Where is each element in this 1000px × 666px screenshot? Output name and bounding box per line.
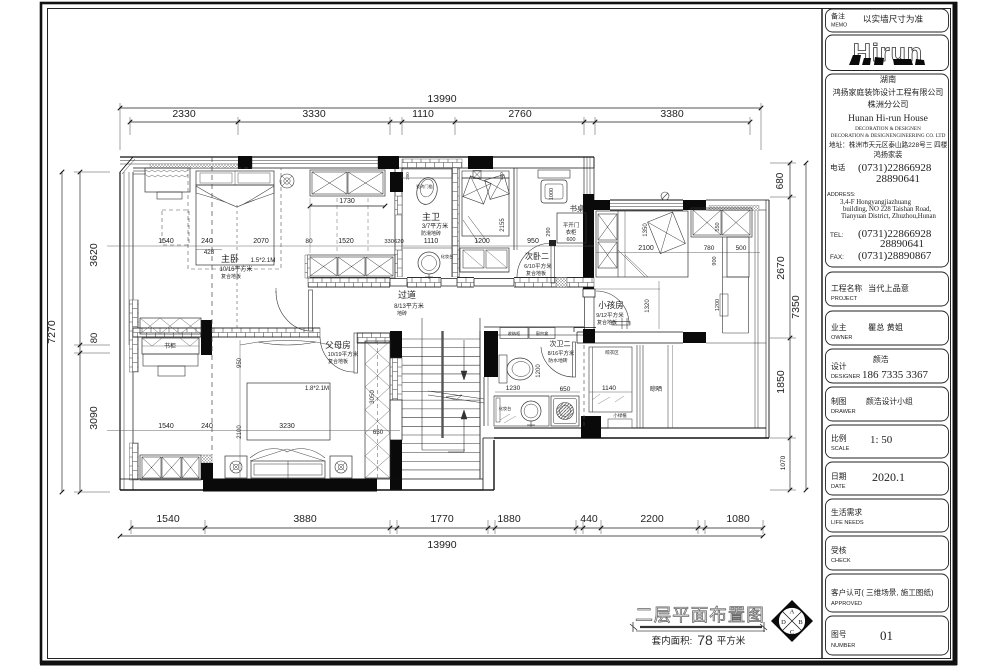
svg-text:7350: 7350	[790, 295, 802, 319]
svg-text:1540: 1540	[156, 513, 180, 525]
svg-text:主卫: 主卫	[422, 211, 440, 222]
svg-text:DESIGNER: DESIGNER	[831, 374, 860, 380]
svg-text:受核: 受核	[831, 545, 847, 555]
svg-text:10/19平方米: 10/19平方米	[328, 350, 359, 358]
svg-text:186 7335 3367: 186 7335 3367	[862, 369, 929, 381]
svg-text:比例: 比例	[831, 433, 847, 443]
svg-text:550: 550	[715, 222, 721, 231]
svg-text:1730: 1730	[339, 198, 355, 205]
svg-text:LIFE NEEDS: LIFE NEEDS	[831, 520, 864, 526]
svg-text:330620: 330620	[384, 239, 403, 245]
svg-text:900: 900	[712, 256, 718, 265]
svg-text:二层平面布置图: 二层平面布置图	[635, 605, 765, 625]
svg-text:化妆台: 化妆台	[499, 405, 512, 412]
svg-text:Tianyuan District, Zhuzhou,Hun: Tianyuan District, Zhuzhou,Hunan	[841, 213, 936, 220]
svg-text:3330: 3330	[302, 108, 326, 120]
svg-text:28890641: 28890641	[876, 173, 920, 185]
svg-text:1770: 1770	[430, 513, 454, 525]
svg-text:1540: 1540	[158, 423, 174, 430]
svg-text:颜浩: 颜浩	[873, 354, 889, 364]
svg-text:晾晒: 晾晒	[650, 385, 662, 393]
svg-text:书桌: 书桌	[570, 203, 585, 213]
svg-text:小绿植: 小绿植	[613, 412, 627, 419]
svg-text:日期: 日期	[831, 472, 847, 481]
svg-text:DATE: DATE	[831, 484, 846, 490]
svg-text:2070: 2070	[253, 238, 269, 245]
svg-text:950: 950	[527, 238, 539, 245]
svg-text:A: A	[790, 609, 795, 616]
svg-text:1110: 1110	[412, 108, 434, 120]
svg-text:2200: 2200	[640, 513, 664, 525]
svg-text:父母房: 父母房	[325, 340, 351, 350]
svg-text:APPROVED: APPROVED	[831, 601, 862, 607]
svg-text:9/12平方米: 9/12平方米	[596, 311, 624, 319]
svg-text:当代上品意: 当代上品意	[868, 283, 909, 293]
svg-text:过道: 过道	[398, 289, 416, 300]
svg-text:套内面积:: 套内面积:	[652, 635, 693, 647]
svg-text:1140: 1140	[602, 385, 616, 392]
svg-text:复合地板: 复合地板	[597, 319, 617, 326]
svg-text:3230: 3230	[279, 423, 295, 430]
svg-text:1: 50: 1: 50	[870, 434, 893, 446]
svg-text:电话: 电话	[830, 162, 846, 172]
svg-text:1320: 1320	[645, 299, 651, 313]
svg-text:平方米: 平方米	[717, 635, 746, 647]
svg-text:1350: 1350	[643, 223, 649, 237]
svg-text:2670: 2670	[775, 256, 787, 280]
svg-text:780: 780	[704, 245, 715, 252]
svg-text:MEMO: MEMO	[831, 23, 847, 29]
svg-text:240: 240	[201, 423, 213, 430]
svg-text:680: 680	[775, 172, 786, 189]
svg-text:平开门: 平开门	[563, 221, 579, 229]
svg-text:工程名称: 工程名称	[831, 283, 862, 293]
svg-text:1880: 1880	[497, 513, 521, 525]
svg-text:制图: 制图	[831, 396, 847, 406]
svg-text:TEL:: TEL:	[830, 232, 844, 239]
svg-text:地砖: 地砖	[397, 310, 407, 317]
svg-text:290: 290	[546, 227, 552, 236]
svg-text:building, NO 228 Taishan Road,: building, NO 228 Taishan Road,	[843, 206, 931, 213]
svg-text:200: 200	[405, 172, 410, 180]
svg-text:8/13平方米: 8/13平方米	[394, 302, 424, 310]
svg-text:鸿扬家装: 鸿扬家装	[874, 150, 903, 159]
svg-text:1070: 1070	[780, 455, 787, 470]
svg-text:78: 78	[697, 632, 713, 648]
svg-text:13990: 13990	[427, 539, 456, 551]
svg-text:3090: 3090	[88, 406, 100, 430]
svg-text:衣柜: 衣柜	[566, 228, 577, 236]
svg-text:颜浩设计小组: 颜浩设计小组	[866, 396, 913, 406]
svg-text:01: 01	[880, 628, 893, 643]
svg-text:80: 80	[305, 238, 313, 245]
svg-text:OWNER: OWNER	[831, 335, 852, 341]
svg-text:6/10平方米: 6/10平方米	[524, 262, 552, 270]
svg-text:1.8*2.1M: 1.8*2.1M	[305, 386, 329, 392]
svg-text:株洲分公司: 株洲分公司	[868, 99, 909, 109]
svg-text:1230: 1230	[506, 385, 521, 392]
svg-text:图号: 图号	[831, 630, 847, 639]
svg-text:复合地板: 复合地板	[221, 273, 241, 280]
svg-text:地址：株洲市天元区泰山路228号三 四楼: 地址：株洲市天元区泰山路228号三 四楼	[829, 140, 948, 149]
svg-text:客户认可( 三维场景, 施工图纸): 客户认可( 三维场景, 施工图纸)	[831, 587, 934, 597]
svg-text:B: B	[798, 619, 803, 626]
svg-text:NUMBER: NUMBER	[831, 643, 855, 649]
svg-text:防水地砖: 防水地砖	[548, 357, 567, 364]
svg-text:次卫二: 次卫二	[550, 339, 571, 348]
svg-text:1080: 1080	[726, 513, 750, 525]
svg-text:2100: 2100	[638, 245, 654, 252]
svg-text:防滑地砖: 防滑地砖	[421, 230, 441, 237]
svg-text:以实墙尺寸为准: 以实墙尺寸为准	[863, 13, 924, 24]
svg-text:2330: 2330	[172, 108, 196, 120]
svg-text:3880: 3880	[293, 513, 317, 525]
svg-text:1540: 1540	[158, 238, 174, 245]
svg-text:备注: 备注	[831, 12, 845, 21]
svg-text:1200: 1200	[715, 299, 721, 311]
svg-text:Hunan Hi-run House: Hunan Hi-run House	[848, 114, 928, 124]
svg-text:3380: 3380	[660, 108, 684, 120]
svg-text:小孩房: 小孩房	[598, 300, 624, 310]
svg-text:生活需求: 生活需求	[831, 507, 862, 517]
svg-text:1000: 1000	[549, 188, 555, 200]
svg-text:1520: 1520	[338, 238, 354, 245]
svg-text:瓷砖门槛: 瓷砖门槛	[416, 183, 433, 190]
svg-text:3620: 3620	[88, 243, 100, 267]
svg-text:13990: 13990	[427, 93, 456, 105]
svg-text:DRAWER: DRAWER	[831, 409, 856, 415]
svg-text:650: 650	[560, 386, 571, 393]
svg-text:28890641: 28890641	[880, 238, 924, 250]
svg-text:复合地板: 复合地板	[328, 358, 348, 365]
svg-text:2760: 2760	[508, 108, 532, 120]
svg-text:SCALE: SCALE	[831, 446, 850, 452]
svg-text:晾衣区: 晾衣区	[605, 349, 619, 356]
svg-text:CHECK: CHECK	[831, 558, 851, 564]
svg-text:650: 650	[373, 429, 384, 436]
svg-text:1.5*2.1M: 1.5*2.1M	[251, 257, 276, 264]
svg-text:设计: 设计	[831, 361, 847, 371]
svg-text:鸿扬家庭装饰设计工程有限公司: 鸿扬家庭装饰设计工程有限公司	[833, 87, 943, 97]
svg-text:窗帘盒: 窗帘盒	[536, 330, 549, 337]
svg-text:DECORATION & DESIGNEN: DECORATION & DESIGNEN	[855, 126, 921, 132]
svg-text:1110: 1110	[424, 238, 439, 245]
svg-text:1200: 1200	[536, 364, 542, 378]
svg-text:次卧二: 次卧二	[525, 251, 549, 261]
svg-text:440: 440	[580, 513, 598, 525]
svg-text:428: 428	[204, 249, 215, 256]
svg-text:湖南: 湖南	[880, 74, 896, 84]
svg-text:10/16平方米: 10/16平方米	[219, 265, 252, 273]
svg-text:收纳柜: 收纳柜	[508, 330, 521, 337]
svg-text:240: 240	[201, 238, 213, 245]
svg-text:C: C	[790, 629, 794, 636]
svg-text:1200: 1200	[474, 238, 490, 245]
svg-text:主卧: 主卧	[221, 253, 239, 264]
svg-text:80: 80	[89, 333, 100, 344]
svg-text:业主: 业主	[831, 322, 847, 332]
svg-text:D: D	[781, 619, 786, 626]
svg-text:2155: 2155	[500, 218, 506, 232]
svg-text:PROJECT: PROJECT	[831, 296, 858, 302]
svg-text:(0731)28890867: (0731)28890867	[858, 250, 932, 262]
svg-text:7270: 7270	[46, 320, 58, 344]
svg-text:书柜: 书柜	[164, 342, 176, 350]
svg-text:3/7平方米: 3/7平方米	[422, 222, 448, 230]
svg-text:8/16平方米: 8/16平方米	[548, 349, 575, 357]
svg-text:FAX:: FAX:	[830, 254, 844, 261]
svg-text:1850: 1850	[775, 370, 787, 394]
svg-text:化妆台: 化妆台	[441, 253, 454, 260]
svg-text:ADDRESS:: ADDRESS:	[827, 192, 856, 198]
svg-text:3050: 3050	[369, 390, 376, 404]
svg-text:600: 600	[567, 237, 576, 243]
svg-text:DECORATION & DESIGNENGINEERING: DECORATION & DESIGNENGINEERING CO. LTD	[831, 133, 946, 139]
svg-text:3,4-F Hongyangjiazhuang: 3,4-F Hongyangjiazhuang	[840, 199, 912, 206]
svg-text:瞿总 黄姐: 瞿总 黄姐	[868, 322, 903, 332]
svg-text:2020.1: 2020.1	[872, 470, 905, 484]
svg-text:复合地板: 复合地板	[526, 270, 546, 277]
svg-text:500: 500	[736, 245, 747, 252]
